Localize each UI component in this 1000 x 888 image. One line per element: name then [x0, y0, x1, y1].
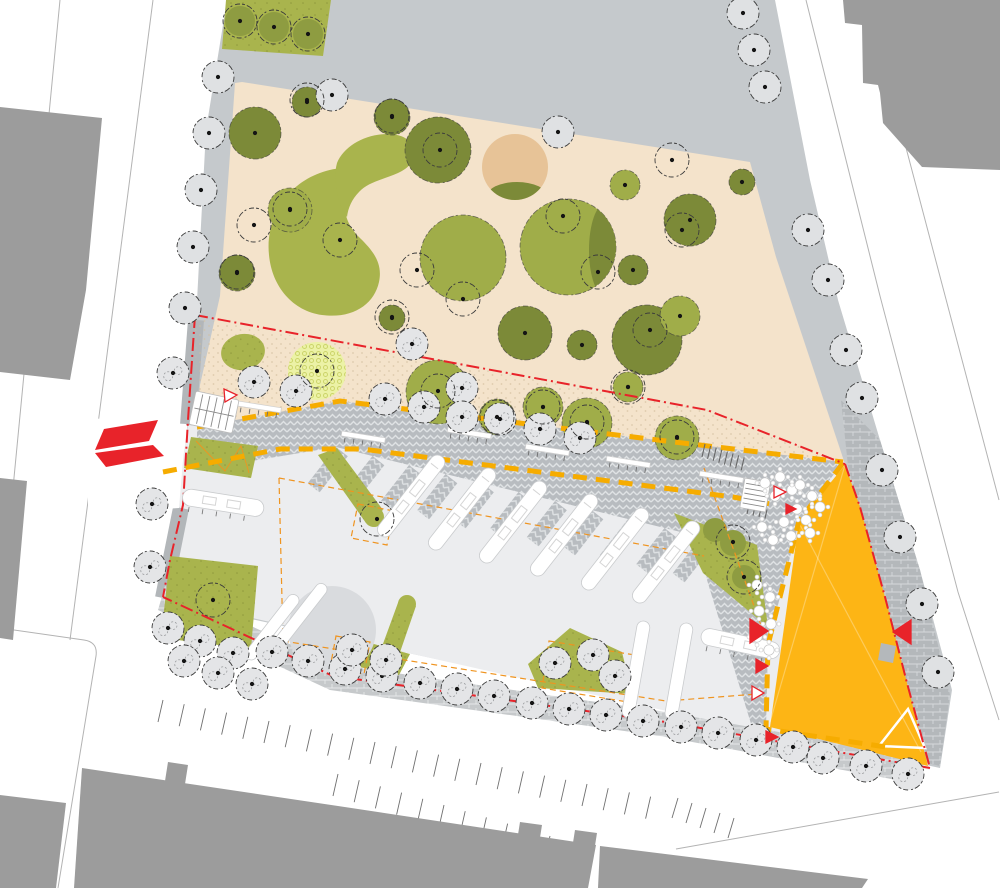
- tree-trunk-dot: [375, 517, 379, 521]
- tree: [892, 758, 924, 790]
- chair: [765, 609, 769, 613]
- tree-trunk-dot: [530, 701, 534, 705]
- tree-trunk-dot: [898, 535, 902, 539]
- chair: [765, 494, 769, 498]
- tree: [812, 264, 844, 296]
- tree-trunk-dot: [742, 575, 746, 579]
- tree: [369, 383, 401, 415]
- chair: [781, 534, 785, 538]
- tree-trunk-dot: [211, 598, 215, 602]
- chair: [789, 526, 793, 530]
- tree: [316, 79, 348, 111]
- tree: [292, 645, 324, 677]
- chair: [755, 643, 759, 647]
- tree-trunk-dot: [613, 674, 617, 678]
- tree-trunk-dot: [920, 602, 924, 606]
- tree-trunk-dot: [272, 25, 276, 29]
- tree-trunk-dot: [330, 93, 334, 97]
- tree-trunk-dot: [294, 389, 298, 393]
- tree-trunk-dot: [461, 297, 465, 301]
- tree-trunk-dot: [523, 331, 527, 335]
- tree: [280, 375, 312, 407]
- tree: [152, 612, 184, 644]
- tree: [627, 705, 659, 737]
- tree-trunk-dot: [740, 180, 744, 184]
- tree-trunk-dot: [252, 223, 256, 227]
- tree-trunk-dot: [826, 278, 830, 282]
- tree-trunk-dot: [741, 11, 745, 15]
- tree: [478, 680, 510, 712]
- tree-trunk-dot: [864, 764, 868, 768]
- building: [572, 830, 597, 852]
- table-top: [764, 645, 774, 655]
- table-top: [760, 478, 770, 488]
- tree: [238, 366, 270, 398]
- tree-trunk-dot: [688, 218, 692, 222]
- chair: [763, 473, 767, 477]
- tree: [738, 34, 770, 66]
- tree: [202, 61, 234, 93]
- chair: [804, 510, 808, 514]
- tree-trunk-dot: [238, 19, 242, 23]
- tree-trunk-dot: [731, 540, 735, 544]
- tree-trunk-dot: [580, 343, 584, 347]
- tree: [906, 588, 938, 620]
- tree-trunk-dot: [305, 98, 309, 102]
- chair: [768, 603, 772, 607]
- tree: [446, 372, 478, 404]
- table-top: [795, 480, 805, 490]
- chair: [763, 635, 767, 639]
- tree-trunk-dot: [641, 719, 645, 723]
- tree-trunk-dot: [821, 756, 825, 760]
- chair: [761, 622, 765, 626]
- tree: [727, 0, 759, 29]
- chair: [782, 528, 786, 532]
- chair: [795, 499, 799, 503]
- chair: [773, 502, 777, 506]
- tree-trunk-dot: [538, 427, 542, 431]
- tree: [850, 750, 882, 782]
- chair: [760, 517, 764, 521]
- tree-trunk-dot: [680, 228, 684, 232]
- chair: [776, 595, 780, 599]
- tree: [922, 656, 954, 688]
- chair: [777, 622, 781, 626]
- chair: [763, 583, 767, 587]
- chair: [808, 539, 812, 543]
- tree-trunk-dot: [754, 738, 758, 742]
- table-top: [765, 592, 775, 602]
- tree: [749, 71, 781, 103]
- tree: [777, 731, 809, 763]
- chair: [802, 494, 806, 498]
- tree-trunk-dot: [880, 468, 884, 472]
- tree: [396, 328, 428, 360]
- tree-trunk-dot: [148, 565, 152, 569]
- tree-trunk-dot: [541, 405, 545, 409]
- tree-trunk-dot: [183, 306, 187, 310]
- tree-trunk-dot: [438, 148, 442, 152]
- tree: [539, 647, 571, 679]
- chair: [757, 601, 761, 605]
- tree: [516, 687, 548, 719]
- tree-trunk-dot: [556, 130, 560, 134]
- tree-trunk-dot: [150, 502, 154, 506]
- chair: [763, 538, 767, 542]
- tree-trunk-dot: [350, 648, 354, 652]
- chair: [747, 583, 751, 587]
- chair: [790, 496, 794, 500]
- tree-trunk-dot: [166, 626, 170, 630]
- tree-trunk-dot: [231, 651, 235, 655]
- chair: [775, 648, 779, 652]
- tree-trunk-dot: [216, 75, 220, 79]
- table-top: [757, 522, 767, 532]
- tree: [441, 673, 473, 705]
- chair: [771, 481, 775, 485]
- tree: [136, 488, 168, 520]
- chair: [755, 591, 759, 595]
- tree: [370, 644, 402, 676]
- chair: [771, 546, 775, 550]
- chair: [779, 538, 783, 542]
- tree: [807, 742, 839, 774]
- tree-trunk-dot: [585, 420, 589, 424]
- chair: [798, 475, 802, 479]
- tree: [408, 391, 440, 423]
- tree-trunk-dot: [198, 639, 202, 643]
- tree: [564, 422, 596, 454]
- amber-notch: [878, 643, 896, 663]
- site-plan-canvas: [0, 0, 1000, 888]
- table-top: [779, 517, 789, 527]
- tree-trunk-dot: [436, 389, 440, 393]
- table-top: [815, 502, 825, 512]
- tree-trunk-dot: [216, 671, 220, 675]
- tree: [542, 116, 574, 148]
- chair: [771, 530, 775, 534]
- chair: [810, 505, 814, 509]
- table-top: [786, 531, 796, 541]
- tree-trunk-dot: [207, 131, 211, 135]
- tree-trunk-dot: [191, 245, 195, 249]
- chair: [763, 489, 767, 493]
- chair: [759, 648, 763, 652]
- tree-trunk-dot: [252, 380, 256, 384]
- tree-trunk-dot: [171, 371, 175, 375]
- tree-trunk-dot: [306, 32, 310, 36]
- tree-trunk-dot: [623, 183, 627, 187]
- table-top: [807, 491, 817, 501]
- tree-trunk-dot: [791, 745, 795, 749]
- tree-trunk-dot: [495, 415, 499, 419]
- tree-trunk-dot: [250, 682, 254, 686]
- tree: [590, 699, 622, 731]
- tree: [193, 117, 225, 149]
- chair: [790, 520, 794, 524]
- building: [0, 795, 66, 888]
- table-top: [768, 535, 778, 545]
- tree-trunk-dot: [763, 85, 767, 89]
- chair: [818, 513, 822, 517]
- chair: [812, 518, 816, 522]
- chair: [789, 542, 793, 546]
- tree-trunk-dot: [455, 687, 459, 691]
- building: [517, 822, 542, 844]
- tree: [157, 357, 189, 389]
- chair: [769, 614, 773, 618]
- tree-trunk-dot: [390, 114, 394, 118]
- tree-trunk-dot: [422, 405, 426, 409]
- lawn-tip: [398, 595, 416, 613]
- tree: [168, 645, 200, 677]
- chair: [774, 520, 778, 524]
- tree: [792, 214, 824, 246]
- tree-trunk-dot: [936, 670, 940, 674]
- tree-trunk-dot: [288, 207, 292, 211]
- tree: [169, 292, 201, 324]
- chair: [800, 531, 804, 535]
- tree-trunk-dot: [906, 772, 910, 776]
- tree-trunk-dot: [675, 435, 679, 439]
- chair: [752, 525, 756, 529]
- chair: [749, 609, 753, 613]
- tree-trunk-dot: [631, 268, 635, 272]
- tree-trunk-dot: [418, 681, 422, 685]
- tree: [702, 717, 734, 749]
- tree: [599, 660, 631, 692]
- tree-trunk-dot: [670, 158, 674, 162]
- tree: [256, 636, 288, 668]
- tree-trunk-dot: [415, 268, 419, 272]
- tree-trunk-dot: [384, 658, 388, 662]
- tree-trunk-dot: [338, 238, 342, 242]
- tree-trunk-dot: [567, 707, 571, 711]
- chair: [808, 523, 812, 527]
- chair: [816, 531, 820, 535]
- tree-trunk-dot: [648, 328, 652, 332]
- tree-trunk-dot: [253, 131, 257, 135]
- chair: [755, 481, 759, 485]
- tree-canopy: [420, 215, 506, 301]
- tree-trunk-dot: [716, 731, 720, 735]
- tree-trunk-dot: [678, 314, 682, 318]
- chair: [769, 630, 773, 634]
- tree-trunk-dot: [561, 214, 565, 218]
- tree-trunk-dot: [844, 348, 848, 352]
- tree-trunk-dot: [596, 270, 600, 274]
- tree-trunk-dot: [626, 385, 630, 389]
- tree: [134, 551, 166, 583]
- chair: [760, 533, 764, 537]
- chair: [760, 595, 764, 599]
- tree: [524, 413, 556, 445]
- tree-trunk-dot: [460, 386, 464, 390]
- tree: [185, 174, 217, 206]
- tree-trunk-dot: [199, 188, 203, 192]
- tree: [665, 711, 697, 743]
- chair: [757, 617, 761, 621]
- tree: [846, 382, 878, 414]
- tree-trunk-dot: [270, 650, 274, 654]
- tree: [336, 634, 368, 666]
- tree-trunk-dot: [591, 653, 595, 657]
- tree: [446, 401, 478, 433]
- tree: [884, 521, 916, 553]
- tree-trunk-dot: [306, 659, 310, 663]
- chair: [786, 475, 790, 479]
- table-top: [775, 472, 785, 482]
- tree-trunk-dot: [235, 270, 239, 274]
- tree-trunk-dot: [343, 667, 347, 671]
- tree-trunk-dot: [460, 415, 464, 419]
- chair: [826, 505, 830, 509]
- site-plan: [0, 0, 1000, 888]
- tree: [830, 334, 862, 366]
- tree-trunk-dot: [390, 315, 394, 319]
- chair: [798, 491, 802, 495]
- tree: [177, 231, 209, 263]
- chair: [768, 525, 772, 529]
- tree: [404, 667, 436, 699]
- chair: [810, 486, 814, 490]
- tree-trunk-dot: [492, 694, 496, 698]
- tree-trunk-dot: [553, 661, 557, 665]
- chair: [796, 518, 800, 522]
- tree-trunk-dot: [860, 396, 864, 400]
- building: [165, 762, 188, 784]
- chair: [818, 497, 822, 501]
- tree-trunk-dot: [806, 228, 810, 232]
- tree: [866, 454, 898, 486]
- chair: [755, 575, 759, 579]
- chair: [806, 483, 810, 487]
- chair: [778, 467, 782, 471]
- chair: [790, 483, 794, 487]
- chair: [768, 587, 772, 591]
- tree-trunk-dot: [315, 369, 319, 373]
- tree: [553, 693, 585, 725]
- chair: [770, 475, 774, 479]
- chair: [767, 640, 771, 644]
- tree-trunk-dot: [604, 713, 608, 717]
- tree-trunk-dot: [752, 48, 756, 52]
- chair: [778, 483, 782, 487]
- tree-trunk-dot: [410, 342, 414, 346]
- table-top: [805, 528, 815, 538]
- chair: [767, 656, 771, 660]
- tree-trunk-dot: [182, 659, 186, 663]
- tree-trunk-dot: [383, 397, 387, 401]
- tree: [236, 668, 268, 700]
- tree: [202, 657, 234, 689]
- table-top: [754, 606, 764, 616]
- table-top: [766, 619, 776, 629]
- tree-trunk-dot: [679, 725, 683, 729]
